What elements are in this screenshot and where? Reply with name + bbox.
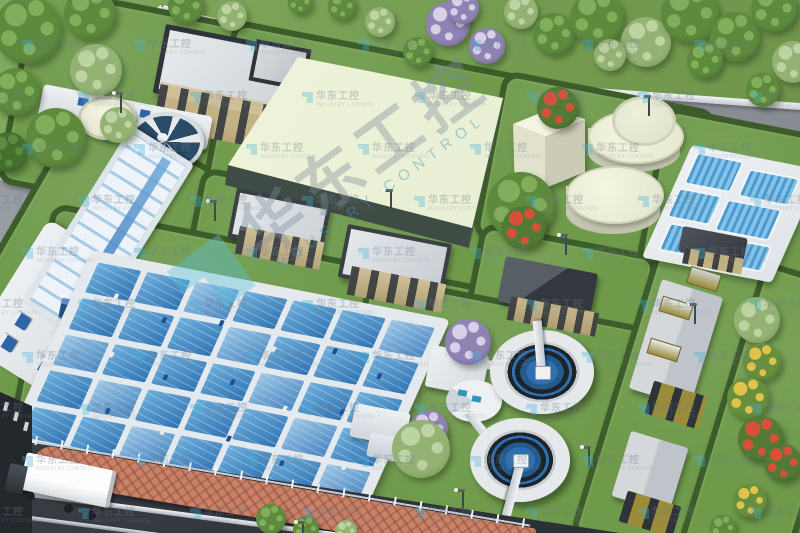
street-lamp <box>214 203 216 221</box>
street-lamp-bulb <box>557 233 561 237</box>
street-lamp <box>302 524 304 533</box>
street-lamp <box>694 306 696 324</box>
lamps-layer <box>0 0 800 533</box>
street-lamp-bulb <box>382 188 386 192</box>
street-lamp-bulb <box>454 488 458 492</box>
street-lamp-bulb <box>686 302 690 306</box>
street-lamp-bulb <box>580 445 584 449</box>
street-lamp-bulb <box>640 94 644 98</box>
street-lamp-bulb <box>206 199 210 203</box>
treatment-plant-render: 华东工控INDUSTRY CONTROL华东工控INDUSTRY CONTROL… <box>0 0 800 533</box>
street-lamp <box>390 192 392 210</box>
street-lamp-bulb <box>112 91 116 95</box>
street-lamp <box>588 449 590 467</box>
street-lamp-bulb <box>294 520 298 524</box>
street-lamp <box>120 95 122 113</box>
street-lamp <box>565 237 567 255</box>
street-lamp <box>648 98 650 116</box>
street-lamp <box>462 492 464 510</box>
